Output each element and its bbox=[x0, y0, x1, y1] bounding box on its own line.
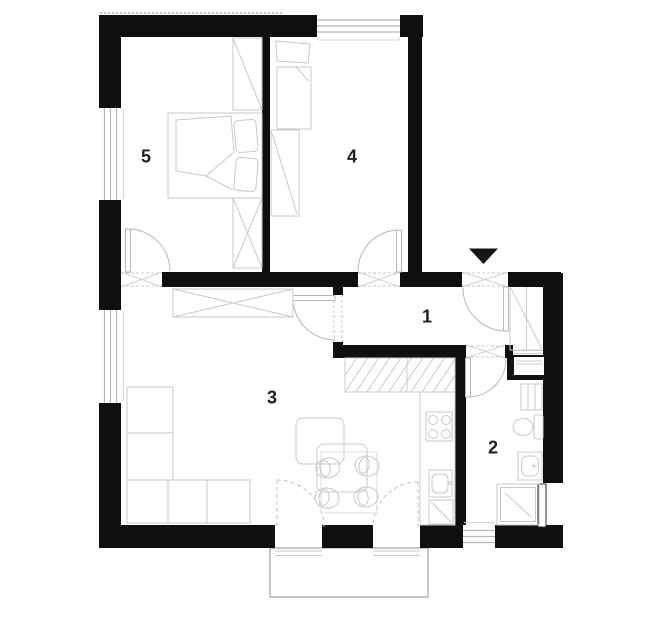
bedroom5-furniture bbox=[168, 38, 262, 268]
toilet bbox=[513, 419, 533, 436]
sofa-corner bbox=[127, 433, 173, 480]
kitchen bbox=[420, 392, 455, 525]
double-bed bbox=[168, 113, 262, 198]
room-label-5: 5 bbox=[141, 147, 151, 168]
pillow bbox=[234, 119, 259, 153]
coffee-table bbox=[317, 444, 367, 492]
bedroom4-furniture bbox=[271, 41, 311, 216]
balcony-door-thresholds bbox=[275, 551, 420, 556]
walls bbox=[99, 15, 563, 548]
bathroom-fixtures bbox=[497, 384, 543, 525]
balcony-doors bbox=[277, 480, 418, 527]
pillow bbox=[234, 157, 259, 192]
desk bbox=[276, 41, 310, 63]
sofa-chaise bbox=[127, 387, 173, 433]
coffee-table bbox=[296, 418, 344, 464]
living-room-furniture bbox=[127, 289, 381, 523]
floor-plan-drawing bbox=[0, 0, 651, 637]
doors bbox=[126, 229, 509, 397]
dining-chairs bbox=[314, 454, 381, 510]
entrance-arrow-icon bbox=[469, 249, 498, 265]
installation-shaft bbox=[508, 351, 545, 381]
room-label-2: 2 bbox=[488, 438, 498, 459]
sofa-bottom bbox=[127, 480, 250, 523]
room-label-3: 3 bbox=[267, 388, 277, 409]
radiator bbox=[521, 384, 542, 410]
floor-plan: 1 2 3 4 5 bbox=[0, 0, 651, 637]
room-label-1: 1 bbox=[422, 307, 432, 328]
builtin-cabinet-hatch bbox=[334, 356, 468, 392]
duvet bbox=[176, 116, 234, 176]
hallway-closet bbox=[510, 287, 543, 350]
room-label-4: 4 bbox=[347, 147, 357, 168]
